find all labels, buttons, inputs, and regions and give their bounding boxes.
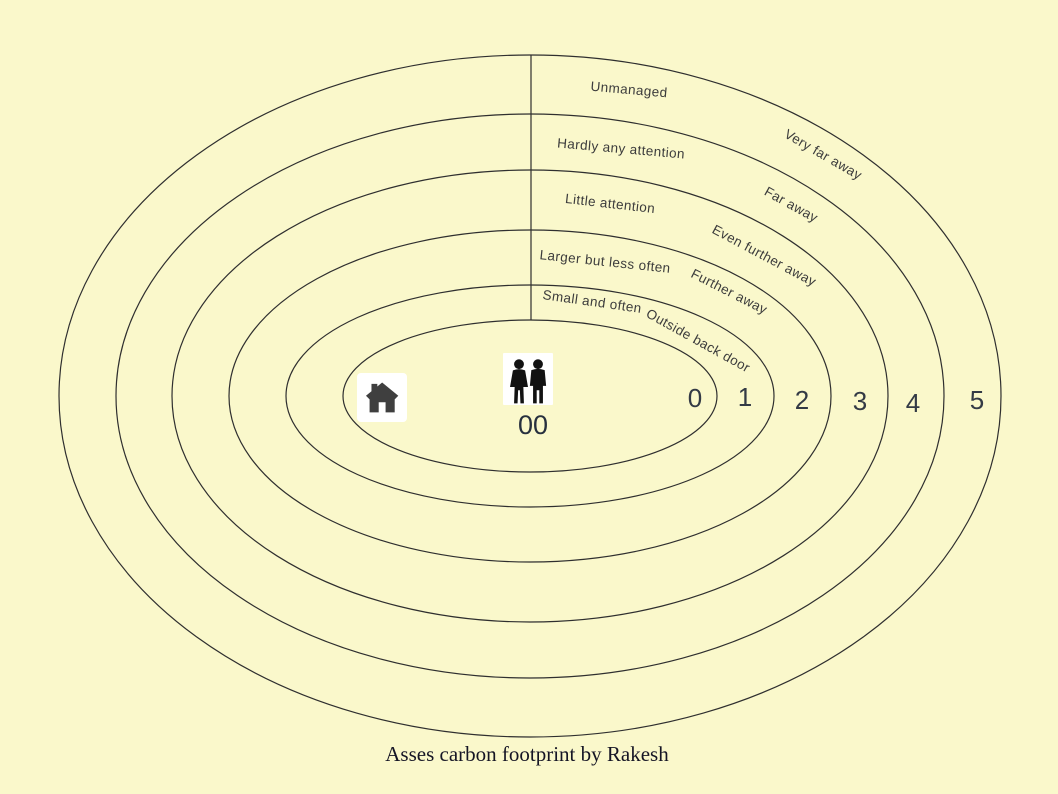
- caption: Asses carbon footprint by Rakesh: [385, 742, 669, 766]
- zones-diagram-page: Small and often Larger but less often Li…: [0, 0, 1058, 794]
- zone-right-label-2: Further away: [689, 266, 770, 317]
- zone-number-3: 3: [853, 386, 867, 416]
- zone-right-label-5: Very far away: [782, 126, 865, 182]
- people-icon-plate: [503, 353, 553, 405]
- zone-left-label-3: Little attention: [564, 191, 656, 216]
- zone-left-label-5: Unmanaged: [590, 79, 668, 101]
- zones-diagram-canvas: Small and often Larger but less often Li…: [0, 0, 1058, 794]
- zone-left-label-1: Small and often: [542, 287, 643, 316]
- zone-number-0: 0: [688, 383, 702, 413]
- zone-left-label-2: Larger but less often: [539, 247, 671, 276]
- zone-number-2: 2: [795, 385, 809, 415]
- zone-number-1: 1: [738, 382, 752, 412]
- zone-number-4: 4: [906, 388, 920, 418]
- zone-left-label-4: Hardly any attention: [557, 135, 686, 161]
- home-icon: [357, 373, 407, 422]
- people-icon: [503, 353, 553, 405]
- center-zone-label: 00: [518, 410, 548, 440]
- zone-right-label-3: Even further away: [710, 222, 819, 290]
- zone-number-5: 5: [970, 385, 984, 415]
